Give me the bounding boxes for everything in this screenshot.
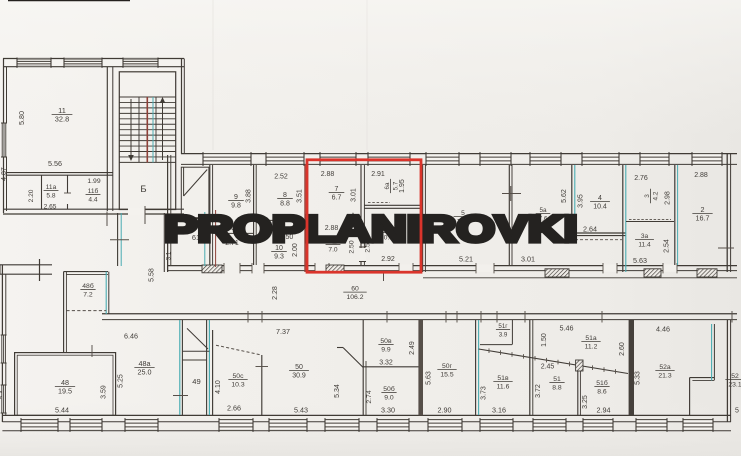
svg-text:2.60: 2.60 (619, 342, 626, 356)
svg-text:2.98: 2.98 (665, 191, 672, 205)
svg-text:50в: 50в (380, 338, 392, 345)
svg-text:8.8: 8.8 (552, 385, 562, 392)
svg-text:50б: 50б (383, 385, 395, 393)
svg-text:50с: 50с (233, 373, 245, 380)
svg-text:106.2: 106.2 (346, 294, 363, 301)
svg-text:15.5: 15.5 (440, 372, 453, 379)
svg-text:2.64: 2.64 (583, 225, 597, 234)
svg-text:3: 3 (644, 194, 651, 198)
svg-text:51г: 51г (498, 323, 508, 330)
svg-text:10.3: 10.3 (231, 382, 244, 389)
svg-text:2.49: 2.49 (409, 341, 416, 355)
svg-text:5.56: 5.56 (48, 159, 62, 168)
svg-text:4.4: 4.4 (88, 197, 97, 204)
svg-text:5.63: 5.63 (633, 256, 647, 265)
svg-text:11.6: 11.6 (497, 384, 510, 391)
svg-text:2.76: 2.76 (634, 175, 648, 182)
svg-text:11.4: 11.4 (638, 242, 651, 249)
svg-text:2.20: 2.20 (28, 189, 35, 202)
svg-text:60: 60 (351, 286, 359, 293)
svg-text:2.88: 2.88 (694, 172, 708, 179)
svg-text:3.25: 3.25 (582, 395, 589, 409)
svg-text:6.46: 6.46 (124, 332, 138, 341)
svg-text:3.51: 3.51 (297, 189, 304, 203)
svg-text:3.01: 3.01 (351, 188, 358, 202)
svg-text:5.8: 5.8 (46, 193, 55, 200)
svg-text:3а: 3а (641, 233, 649, 240)
svg-text:52: 52 (731, 373, 739, 380)
svg-text:3.1: 3.1 (166, 251, 173, 260)
svg-text:2.54: 2.54 (664, 239, 671, 253)
svg-text:2.91: 2.91 (371, 171, 385, 178)
svg-text:10.4: 10.4 (593, 204, 607, 211)
svg-text:51в: 51в (497, 375, 509, 382)
svg-text:3.01: 3.01 (521, 255, 535, 264)
svg-text:Б: Б (140, 184, 146, 195)
svg-text:2.28: 2.28 (272, 286, 279, 300)
svg-text:5.44: 5.44 (55, 406, 69, 415)
svg-text:8.8: 8.8 (280, 201, 290, 208)
svg-text:9: 9 (234, 194, 238, 201)
svg-text:19.5: 19.5 (58, 387, 72, 396)
svg-text:5: 5 (735, 408, 739, 415)
svg-text:9.0: 9.0 (384, 395, 394, 402)
svg-text:21.3: 21.3 (658, 373, 671, 380)
svg-text:25.0: 25.0 (138, 368, 152, 377)
svg-text:49: 49 (192, 377, 200, 386)
svg-text:5.80: 5.80 (17, 111, 26, 125)
svg-text:1.99: 1.99 (87, 178, 100, 185)
svg-text:11б: 11б (88, 187, 99, 195)
svg-text:3.73: 3.73 (481, 386, 488, 400)
svg-text:2.94: 2.94 (597, 406, 611, 415)
svg-text:3.72: 3.72 (535, 384, 542, 398)
svg-text:4.46: 4.46 (656, 325, 670, 334)
svg-text:8: 8 (283, 192, 287, 199)
svg-text:2.65: 2.65 (44, 204, 57, 211)
svg-text:48б: 48б (82, 282, 94, 290)
svg-text:11а: 11а (46, 184, 57, 191)
svg-text:2.90: 2.90 (438, 406, 452, 415)
svg-text:9.9: 9.9 (381, 347, 391, 354)
svg-text:3.30: 3.30 (381, 406, 395, 415)
svg-text:51: 51 (553, 376, 561, 383)
svg-text:3.88: 3.88 (246, 189, 253, 203)
svg-text:7: 7 (335, 186, 339, 193)
svg-text:3.95: 3.95 (578, 194, 585, 208)
svg-text:3.32: 3.32 (379, 360, 393, 367)
svg-text:6а: 6а (384, 182, 391, 189)
svg-text:5.43: 5.43 (294, 406, 308, 415)
svg-text:4.2: 4.2 (653, 191, 660, 200)
svg-text:1.50: 1.50 (541, 333, 548, 347)
svg-text:4: 4 (598, 195, 602, 202)
svg-text:3.16: 3.16 (492, 406, 506, 415)
svg-text:7.37: 7.37 (276, 327, 290, 336)
svg-text:2.92: 2.92 (381, 256, 395, 263)
svg-text:8.6: 8.6 (597, 389, 607, 396)
svg-text:PROPLANIROVKI: PROPLANIROVKI (165, 208, 578, 250)
svg-text:32.8: 32.8 (55, 115, 69, 124)
svg-text:50г: 50г (442, 363, 453, 370)
svg-text:51а: 51а (585, 335, 597, 342)
svg-text:3.9: 3.9 (499, 332, 508, 339)
svg-text:5.34: 5.34 (334, 384, 341, 398)
svg-text:2.45: 2.45 (541, 364, 555, 371)
svg-text:2.52: 2.52 (274, 174, 288, 181)
svg-text:50: 50 (295, 364, 303, 371)
svg-text:1.95: 1.95 (399, 179, 406, 193)
svg-text:52а: 52а (659, 364, 671, 371)
svg-text:2.66: 2.66 (227, 404, 241, 413)
svg-text:30.9: 30.9 (292, 373, 306, 380)
svg-text:5.46: 5.46 (560, 324, 574, 333)
svg-text:2.88: 2.88 (321, 171, 335, 178)
svg-text:5.58: 5.58 (149, 268, 156, 282)
svg-text:4.10: 4.10 (215, 380, 222, 394)
svg-text:9.3: 9.3 (274, 254, 284, 261)
svg-text:5.63: 5.63 (426, 371, 433, 385)
svg-text:5.21: 5.21 (459, 255, 473, 264)
svg-text:51б: 51б (596, 379, 608, 387)
svg-text:16.7: 16.7 (696, 214, 710, 223)
svg-text:7.2: 7.2 (83, 292, 93, 299)
svg-text:11.2: 11.2 (585, 344, 598, 351)
svg-text:6.7: 6.7 (332, 195, 342, 202)
svg-text:2.74: 2.74 (366, 390, 373, 403)
svg-text:5.25: 5.25 (118, 374, 125, 388)
svg-text:4.87: 4.87 (1, 167, 8, 181)
svg-text:5.62: 5.62 (561, 189, 568, 203)
svg-text:5.33: 5.33 (635, 371, 642, 385)
svg-text:3.59: 3.59 (101, 385, 108, 399)
